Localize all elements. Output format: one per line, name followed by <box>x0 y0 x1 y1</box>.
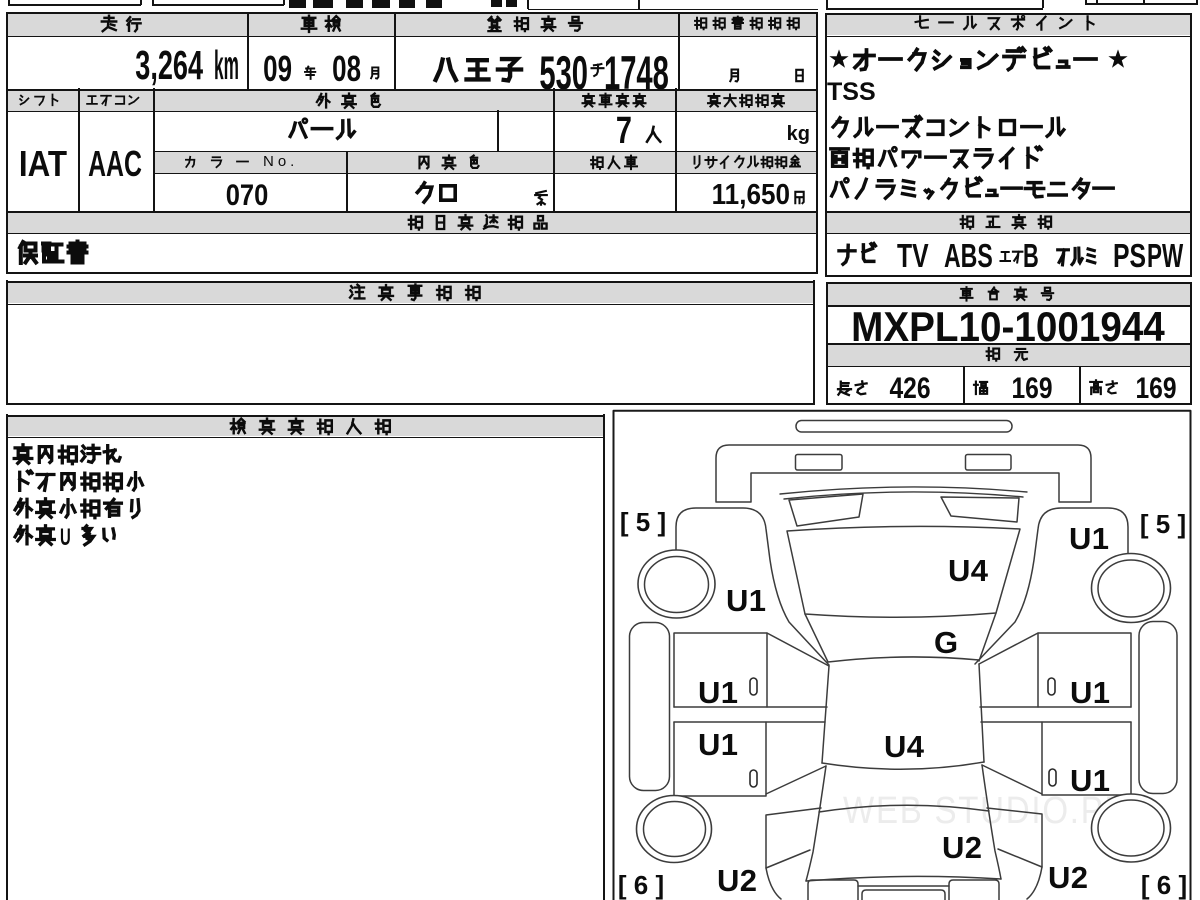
svg-text:U1: U1 <box>726 583 766 618</box>
svg-text:[ 6 ]: [ 6 ] <box>1141 870 1187 900</box>
svg-text:U1: U1 <box>1070 675 1110 710</box>
svg-text:U4: U4 <box>884 729 925 764</box>
svg-text:G: G <box>934 625 958 660</box>
svg-text:U2: U2 <box>942 830 982 865</box>
svg-text:[ 5 ]: [ 5 ] <box>1140 509 1186 539</box>
svg-text:U2: U2 <box>717 863 757 898</box>
svg-text:[ 6 ]: [ 6 ] <box>618 870 664 900</box>
svg-text:U1: U1 <box>1069 521 1109 556</box>
svg-text:[ 5 ]: [ 5 ] <box>620 507 666 537</box>
svg-text:U1: U1 <box>698 727 738 762</box>
svg-text:U1: U1 <box>698 675 738 710</box>
svg-text:U4: U4 <box>948 553 989 588</box>
svg-text:U2: U2 <box>1048 860 1088 895</box>
svg-text:U1: U1 <box>1070 763 1110 798</box>
